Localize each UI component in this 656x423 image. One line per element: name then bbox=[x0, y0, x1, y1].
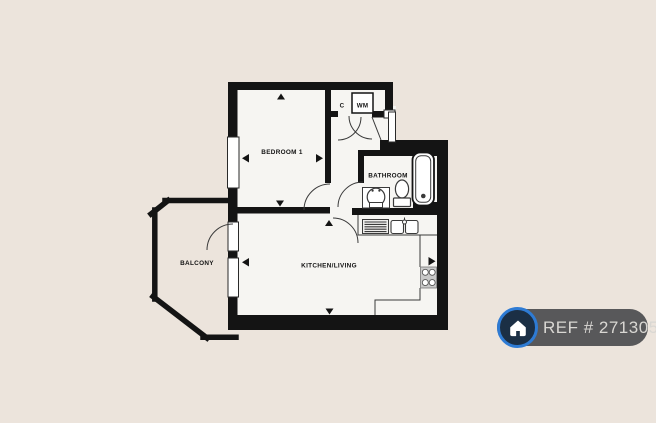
house-icon bbox=[497, 307, 538, 348]
balcony-walls bbox=[151, 201, 236, 339]
bathroom-sink-icon bbox=[363, 188, 390, 209]
room-label-bedroom: BEDROOM 1 bbox=[261, 149, 303, 156]
toilet-icon bbox=[394, 180, 411, 207]
balcony-door-glazing bbox=[228, 222, 239, 251]
room-label-bathroom: BATHROOM bbox=[368, 173, 408, 180]
room-label-washing-machine: WM bbox=[357, 103, 369, 110]
bedroom-window bbox=[228, 137, 240, 188]
room-label-balcony: BALCONY bbox=[180, 260, 214, 267]
room-label-cupboard: C bbox=[340, 103, 345, 110]
hob-icon bbox=[421, 267, 437, 288]
room-label-kitchen-living: KITCHEN/LIVING bbox=[301, 263, 357, 270]
floorplan-canvas: BEDROOM 1 BATHROOM KITCHEN/LIVING BALCON… bbox=[0, 0, 656, 423]
bathtub-icon bbox=[413, 153, 435, 206]
floorplan: BEDROOM 1 BATHROOM KITCHEN/LIVING BALCON… bbox=[0, 0, 656, 423]
kitchen-window bbox=[228, 258, 239, 297]
ref-badge: REF # 2713052 bbox=[497, 309, 648, 346]
utility-window bbox=[389, 112, 396, 142]
drainer-icon bbox=[363, 220, 389, 234]
ref-label: REF # 2713052 bbox=[543, 318, 656, 338]
